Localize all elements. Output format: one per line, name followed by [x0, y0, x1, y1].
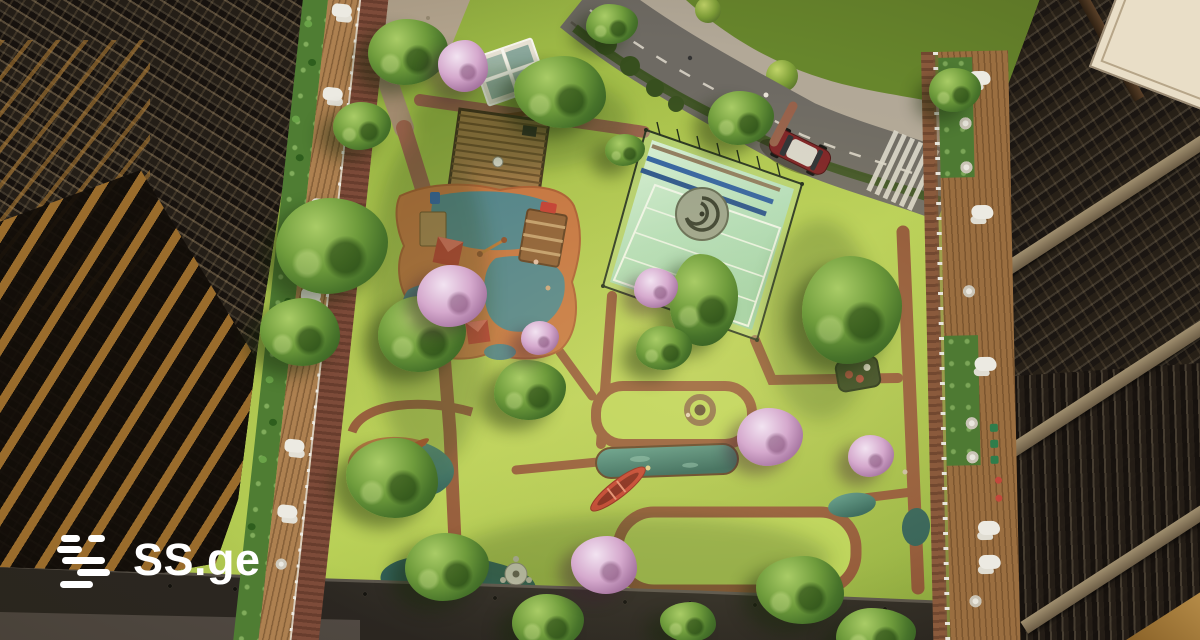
green-pouf [990, 440, 998, 448]
lounger [284, 438, 305, 453]
terrace-table [963, 285, 975, 297]
bean-bag [265, 376, 274, 384]
right-terrace [933, 50, 1021, 640]
facade-beam [997, 71, 1200, 279]
ss-lines-icon [53, 533, 107, 589]
curved-bench [978, 521, 1000, 535]
terrace-table [969, 595, 981, 607]
bean-bag [269, 418, 278, 426]
bean-bag [284, 297, 293, 305]
lounger [331, 3, 352, 18]
bean-bag [292, 115, 301, 123]
green-pouf [990, 456, 998, 464]
bean-bag [308, 59, 317, 67]
ss-ge-logo-text: SS.ge [133, 532, 261, 588]
terrace-table [299, 343, 311, 355]
lounger [300, 287, 321, 302]
curved-bench [971, 205, 993, 219]
bean-bag [304, 20, 313, 28]
terrace-table [275, 558, 287, 570]
curved-bench [979, 555, 1001, 569]
terrace-turf [944, 335, 981, 466]
bean-bag [247, 523, 256, 531]
terrace-deck [938, 50, 1021, 640]
lounger [277, 504, 298, 519]
curved-bench [968, 71, 990, 85]
bean-bag [282, 243, 291, 251]
right-apartment-tower [1002, 0, 1200, 640]
red-chair [995, 477, 1002, 484]
curved-bench [974, 357, 996, 371]
red-chair [995, 495, 1002, 502]
bean-bag [259, 456, 268, 464]
lounger [322, 86, 343, 101]
green-pouf [990, 424, 998, 432]
ss-ge-watermark: SS.ge [53, 531, 261, 589]
lounger [310, 198, 331, 213]
bean-bag [295, 154, 304, 162]
aerial-courtyard-render: SS.ge [0, 0, 1200, 640]
